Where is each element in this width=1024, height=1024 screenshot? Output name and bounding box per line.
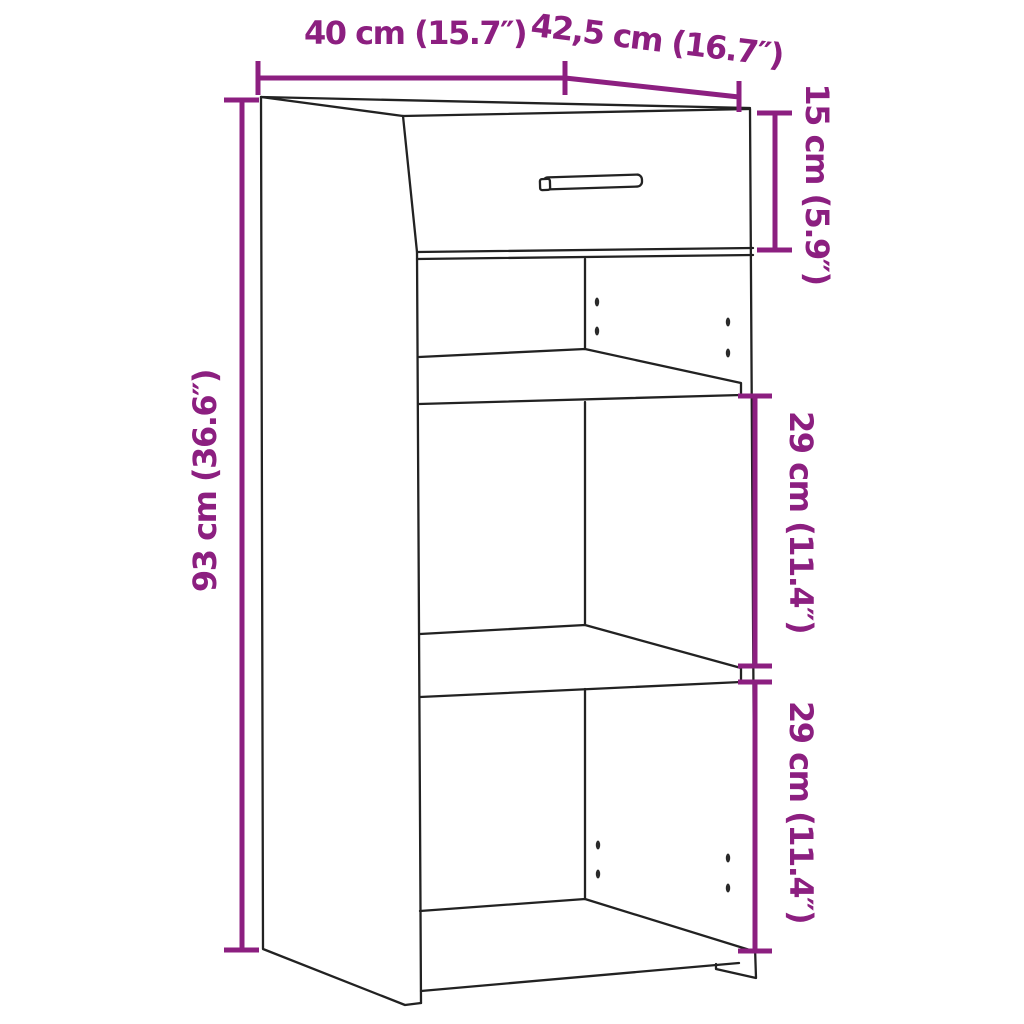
dim-line-lower-compartment	[738, 682, 772, 951]
cabinet-top-front-edge	[403, 109, 750, 116]
product-dimension-diagram: 40 cm (15.7″) 42,5 cm (16.7″) 93 cm (36.…	[0, 0, 1024, 1024]
shelf-lower	[420, 625, 741, 697]
dim-line-width	[258, 61, 565, 95]
dim-label-drawer-height: 15 cm (5.9″)	[798, 83, 836, 284]
dim-line-drawer	[757, 113, 792, 250]
cabinet-front-left-edge	[403, 116, 421, 1003]
dim-line-upper-compartment	[738, 396, 772, 666]
interior-floor	[420, 899, 753, 951]
dim-label-height: 93 cm (36.6″)	[186, 370, 224, 592]
cabinet-left-edge	[261, 97, 421, 1005]
cabinet-right-edge-and-foot	[716, 109, 756, 978]
shelf-pin-holes	[595, 298, 730, 893]
dimension-labels: 40 cm (15.7″) 42,5 cm (16.7″) 93 cm (36.…	[186, 6, 836, 923]
furniture-diagram-svg: 40 cm (15.7″) 42,5 cm (16.7″) 93 cm (36.…	[0, 0, 1024, 1024]
dim-label-width: 40 cm (15.7″)	[304, 14, 526, 52]
cabinet-bottom-front-edge	[421, 963, 739, 991]
dimension-lines	[224, 61, 792, 951]
drawer-gap-line-upper	[417, 248, 753, 252]
dim-label-lower-compartment-height: 29 cm (11.4″)	[782, 701, 820, 923]
dim-label-upper-compartment-height: 29 cm (11.4″)	[782, 411, 820, 633]
dim-line-height	[224, 100, 259, 950]
shelf-upper	[419, 349, 741, 404]
drawer-handle	[540, 174, 642, 190]
cabinet-drawing	[261, 97, 756, 1005]
